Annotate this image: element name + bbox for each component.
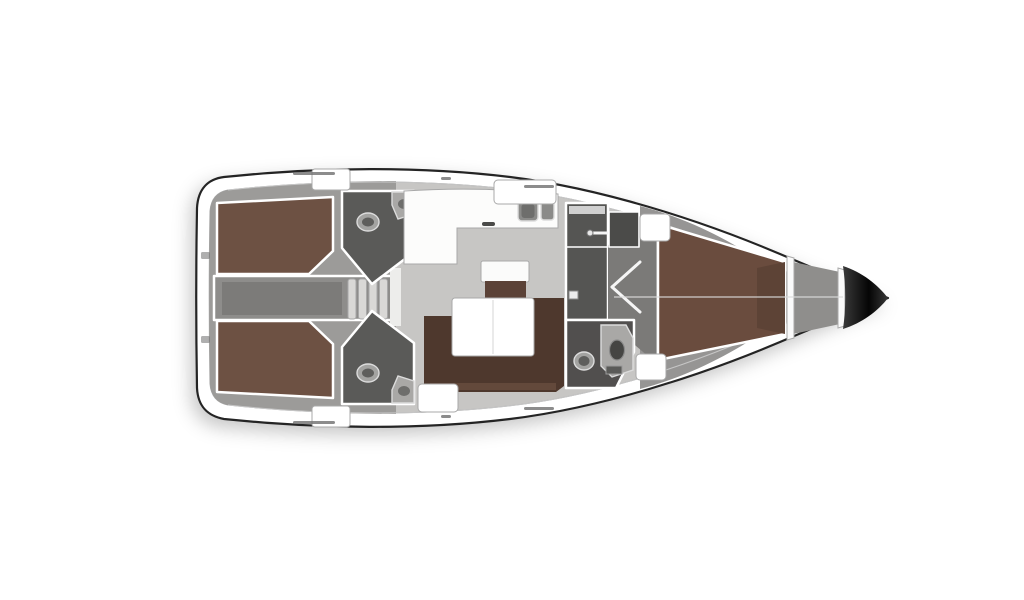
step-tread [359,279,367,319]
deck-vent [524,185,554,188]
bulkhead-forward [838,268,845,328]
transom-fitting [201,252,210,259]
shower-door-knob [587,230,593,236]
deck-locker [636,354,666,380]
deck-vent [441,177,451,180]
galley-stove [482,222,495,226]
wardrobe [609,212,639,247]
forward-head-cabinet [606,366,622,374]
toilet-starboard-bowl [362,369,374,378]
galley-sink-large-basin [522,204,535,218]
deck-vent [441,415,451,418]
aft-cabin-starboard-berth [217,321,333,398]
shower-shelf [569,206,605,214]
transom-fitting [201,336,210,343]
sideboard-top [481,261,529,282]
deck-vent [293,421,335,424]
yacht-floorplan-svg [0,0,1024,600]
shower-room [566,203,608,320]
deck-hatch [494,180,556,204]
sideboard-base [485,281,526,298]
yacht-floorplan-canvas [0,0,1024,600]
bulkhead-aft [787,256,794,340]
bow-tip [843,266,888,329]
step-tread [380,279,388,319]
shower-drain [569,291,578,299]
step-tread [348,279,356,319]
companionway-landing [390,268,401,326]
anchor-locker [793,262,840,334]
sink-basin-starboard [398,386,410,396]
nav-seat [418,384,458,412]
galley-sink-small [541,202,554,220]
deck-vent [293,172,335,175]
toilet-forward-bowl [579,356,590,366]
forward-head-basin [610,340,625,360]
toilet-port-bowl [362,218,374,227]
deck-locker [640,214,670,241]
aft-cabin-port-berth [217,197,333,274]
deck-vent [524,407,554,410]
engine-hatch [222,282,342,315]
forward-berth-head-end [757,262,785,334]
